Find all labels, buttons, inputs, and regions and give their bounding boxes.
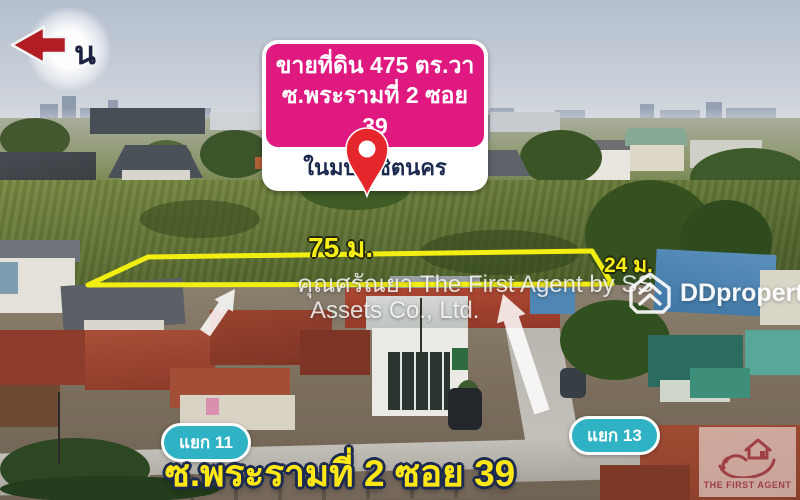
listing-photo: น ขายที่ดิน 475 ตร.วา ซ.พระรามที่ 2 ซอย … <box>0 0 800 500</box>
ddproperty-logo: DDproperty <box>628 271 800 315</box>
agency-name: THE FIRST AGENT <box>704 480 792 490</box>
hand-house-icon <box>716 434 780 478</box>
watermark-line2: Assets Co., Ltd. <box>310 297 479 325</box>
junction-label-13: แยก 13 <box>569 416 660 455</box>
map-pin-icon <box>341 126 393 198</box>
road-name-label: ซ.พระรามที่ 2 ซอย 39 <box>150 444 530 500</box>
ddproperty-house-icon <box>628 271 672 315</box>
road-arrow <box>200 289 235 336</box>
north-label: น <box>74 28 96 79</box>
north-arrow-icon <box>8 24 70 66</box>
banner-title-line1: ขายที่ดิน 475 ตร.วา <box>268 50 482 80</box>
ddproperty-label: DDproperty <box>680 279 800 308</box>
agency-logo: THE FIRST AGENT <box>699 427 796 497</box>
road-arrow <box>497 294 550 415</box>
